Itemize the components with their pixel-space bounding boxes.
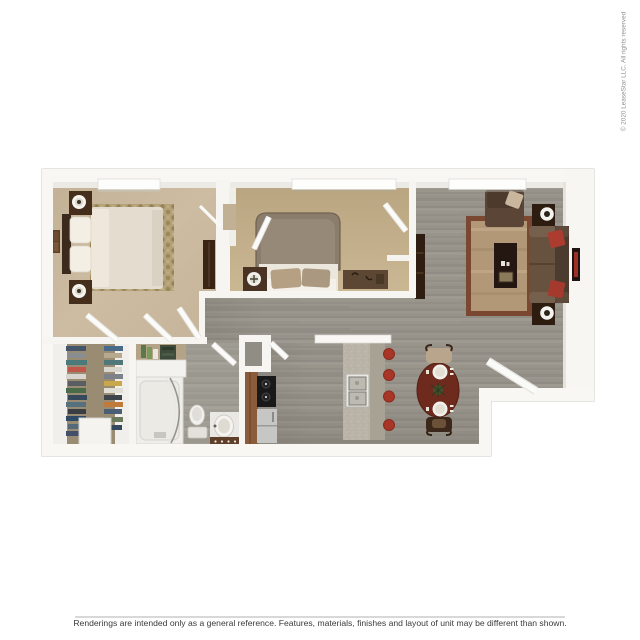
svg-text:© 2020 LeaseStar LLC. All righ: © 2020 LeaseStar LLC. All rights reserve… (620, 11, 628, 131)
svg-text:Renderings are intended only a: Renderings are intended only as a genera… (73, 618, 566, 628)
